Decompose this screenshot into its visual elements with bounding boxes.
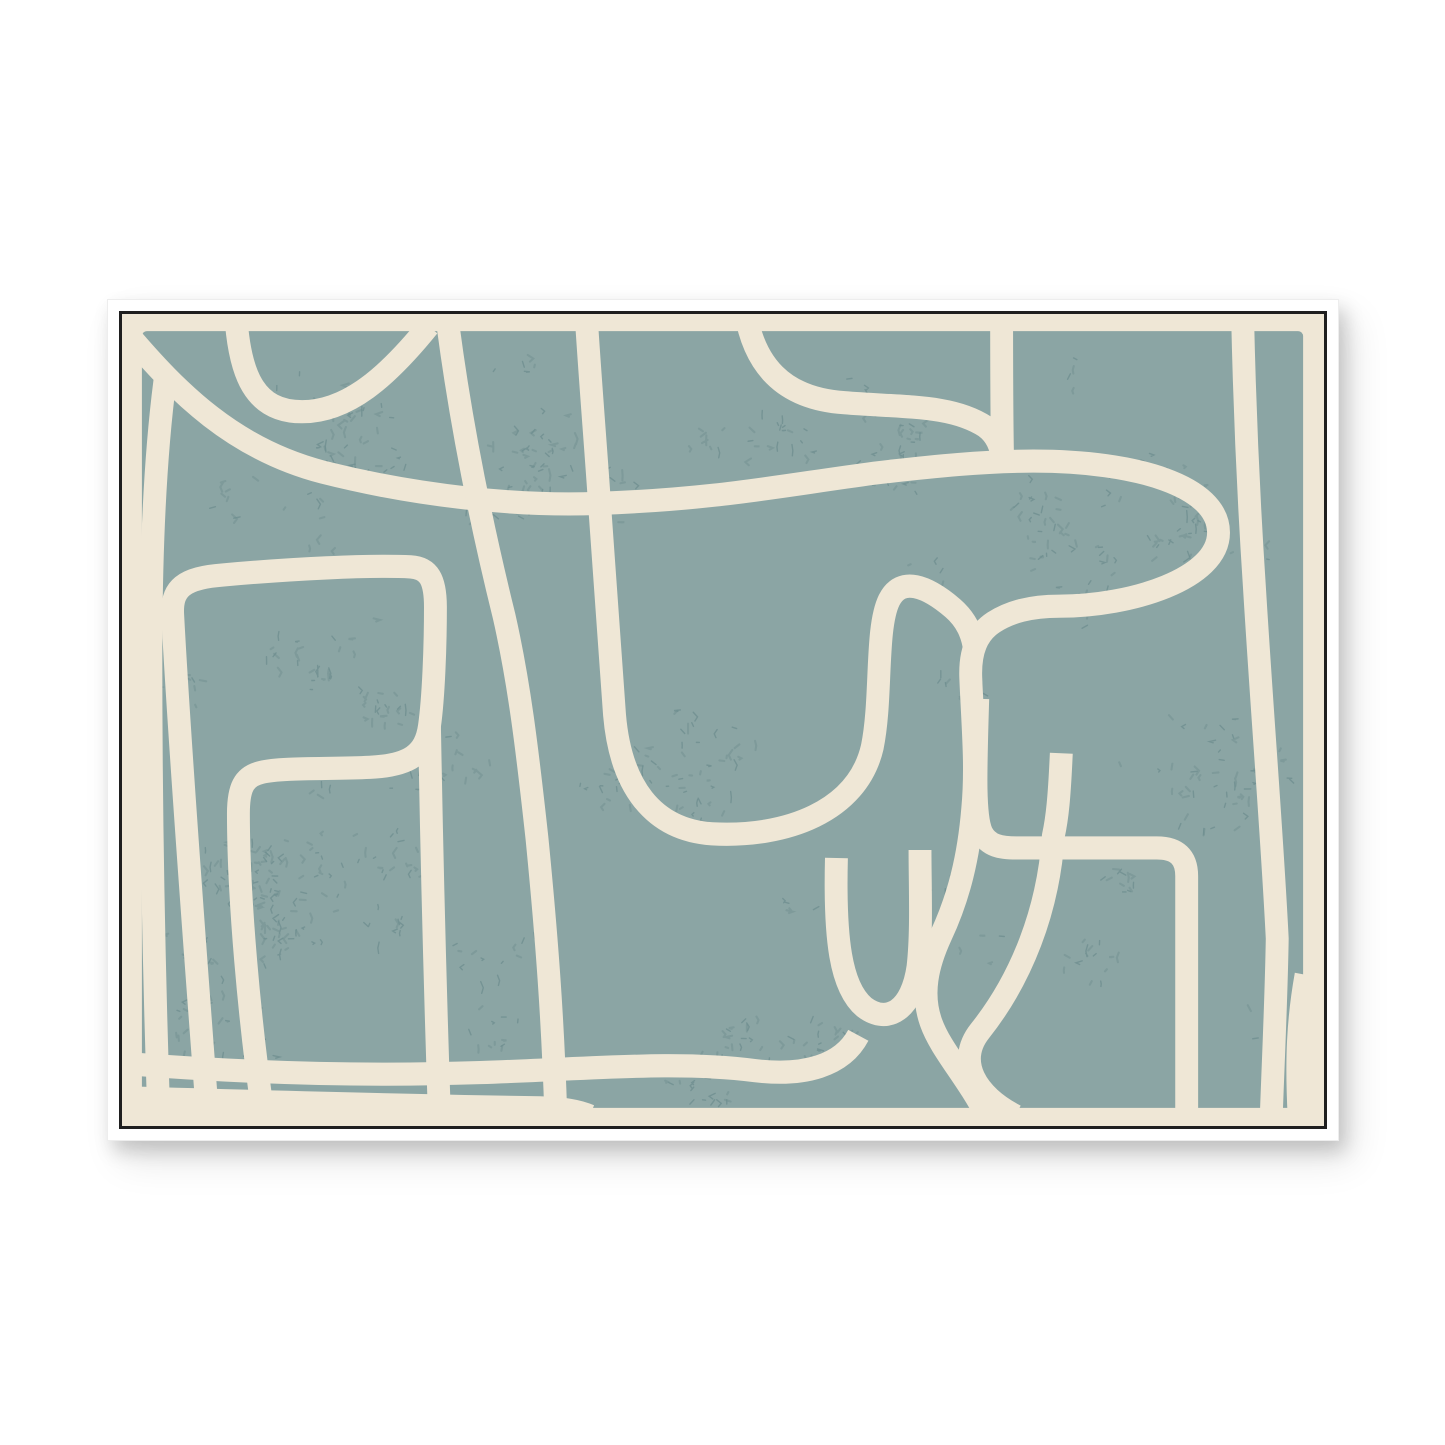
page-background [0, 0, 1445, 1445]
art-line-14 [126, 1098, 590, 1116]
art-line-4 [1002, 314, 1003, 461]
frame-inner-border [119, 311, 1327, 1129]
abstract-line-artwork [122, 314, 1324, 1126]
art-line-16 [1298, 975, 1306, 1116]
art-line-11 [429, 726, 439, 1116]
framed-wall-art [107, 299, 1339, 1141]
